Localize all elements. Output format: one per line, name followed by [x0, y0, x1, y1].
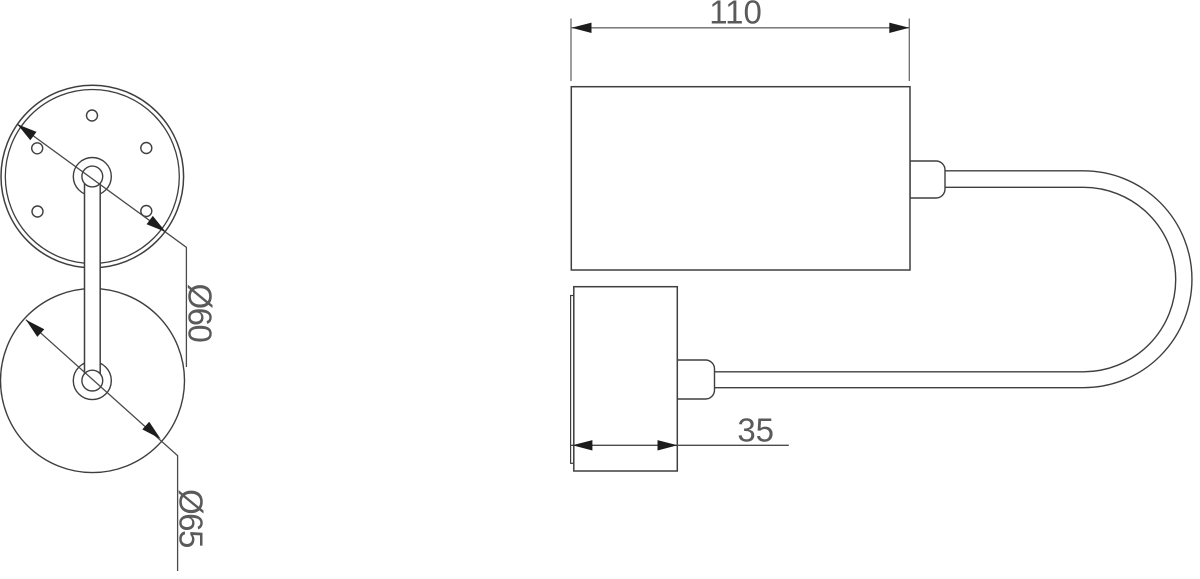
- svg-text:Ø60: Ø60: [182, 284, 219, 343]
- svg-text:Ø65: Ø65: [173, 489, 210, 547]
- svg-text:35: 35: [737, 412, 774, 449]
- svg-text:110: 110: [709, 0, 762, 31]
